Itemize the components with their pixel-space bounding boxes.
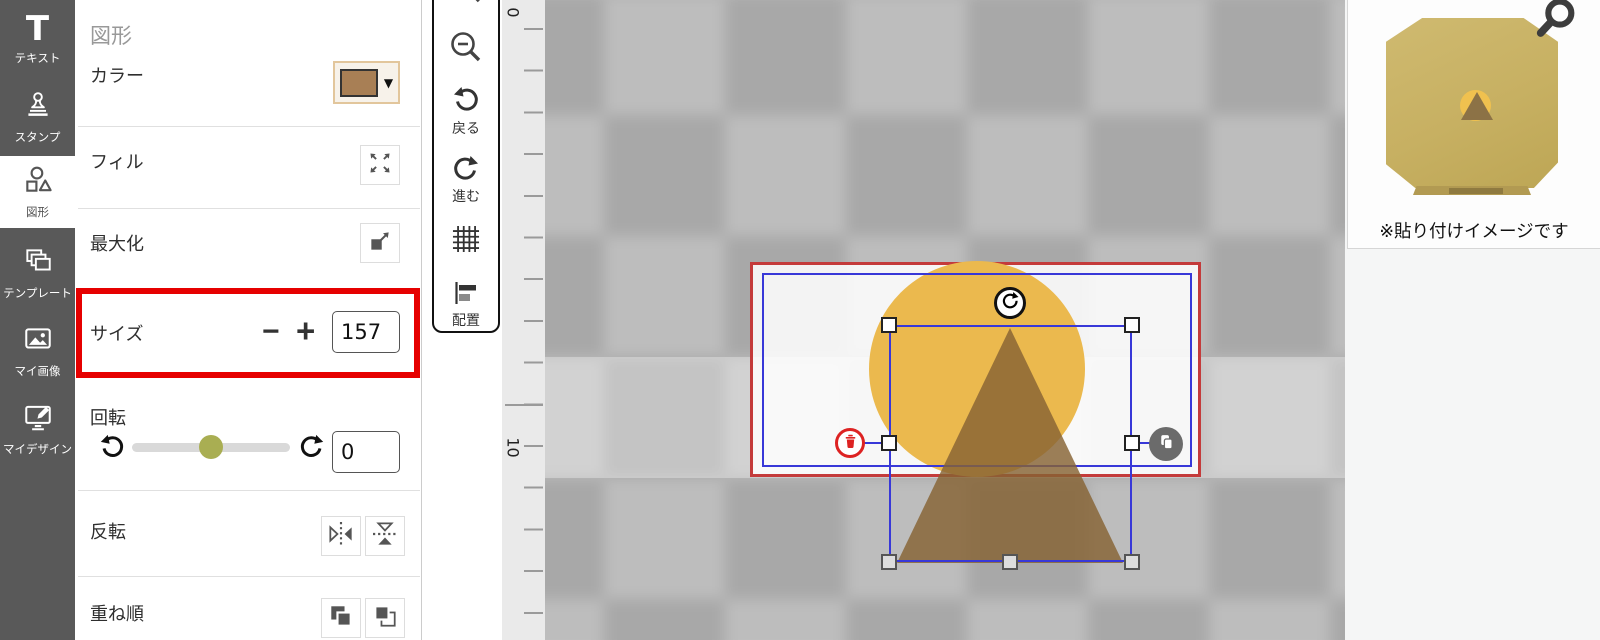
maximize-button[interactable]	[360, 223, 400, 263]
shape-properties-panel: 図形 カラー ▼ フィル 最大化 サイズ − + 回転	[75, 0, 422, 640]
sidebar-item-my-images[interactable]: マイ画像	[0, 312, 75, 390]
text-icon: T	[26, 12, 49, 46]
ruler-ticks	[524, 0, 543, 640]
rotate-handle[interactable]	[994, 287, 1026, 319]
selection-handle-mid-left[interactable]	[881, 435, 897, 451]
rotate-cw-icon	[1000, 291, 1021, 316]
rotate-cw-button[interactable]	[298, 433, 326, 465]
selection-handle-top-left[interactable]	[881, 317, 897, 333]
stamp-icon	[22, 89, 54, 125]
zoom-in-button[interactable]	[434, 0, 498, 8]
flip-horizontal-icon	[325, 518, 357, 554]
expand-arrows-icon	[367, 150, 393, 180]
divider	[78, 490, 420, 491]
sidebar-item-my-designs[interactable]: マイデザイン	[0, 390, 75, 468]
paste-preview-panel: ※貼り付けイメージです	[1347, 0, 1600, 249]
send-backward-icon	[370, 601, 400, 635]
selection-handle-bottom-left[interactable]	[881, 554, 897, 570]
color-picker-button[interactable]: ▼	[333, 61, 400, 104]
order-label: 重ね順	[90, 600, 144, 626]
preview-triangle-shape	[1461, 92, 1493, 120]
sidebar-item-label: テンプレート	[3, 285, 72, 301]
divider	[78, 126, 420, 127]
preview-object-notch	[1449, 188, 1503, 194]
selection-box[interactable]	[889, 325, 1132, 562]
sidebar-item-label: 図形	[26, 204, 49, 220]
vertical-ruler: 0 10	[502, 0, 545, 640]
copy-icon	[1156, 432, 1177, 457]
sidebar-item-label: マイデザイン	[3, 441, 72, 457]
send-backward-button[interactable]	[365, 598, 405, 638]
flip-label: 反転	[90, 518, 126, 544]
ruler-major-tick	[505, 404, 543, 406]
preview-caption: ※貼り付けイメージです	[1352, 218, 1596, 243]
canvas: 0 10 戻る 進む 配置	[422, 0, 1600, 640]
sidebar-item-label: マイ画像	[15, 363, 61, 379]
ruler-label-0: 0	[504, 7, 523, 17]
grid-toggle-button[interactable]	[434, 222, 498, 256]
image-icon	[22, 323, 54, 359]
flip-vertical-icon	[369, 518, 401, 554]
rotation-slider-knob[interactable]	[199, 435, 223, 459]
size-label: サイズ	[90, 320, 143, 346]
divider	[78, 576, 420, 577]
size-decrease-button[interactable]: −	[262, 317, 280, 347]
rotation-label: 回転	[90, 404, 126, 430]
sidebar: T テキスト スタンプ 図形 テンプレート マイ画像	[0, 0, 75, 640]
shapes-icon	[22, 164, 54, 200]
size-increase-button[interactable]: +	[296, 314, 315, 347]
rotation-slider[interactable]	[132, 443, 290, 452]
trash-icon	[842, 433, 859, 454]
delete-button[interactable]	[835, 428, 865, 458]
maximize-icon	[367, 228, 393, 258]
color-label: カラー	[90, 62, 144, 88]
undo-label: 戻る	[434, 118, 498, 138]
flip-vertical-button[interactable]	[365, 516, 405, 556]
fill-label: フィル	[90, 148, 144, 174]
divider	[78, 208, 420, 209]
sidebar-item-shape[interactable]: 図形	[0, 156, 75, 228]
rotate-ccw-button[interactable]	[98, 433, 126, 465]
app-window: T テキスト スタンプ 図形 テンプレート マイ画像	[0, 0, 1600, 640]
align-label: 配置	[434, 310, 498, 330]
size-input[interactable]	[332, 311, 400, 353]
zoom-out-button[interactable]	[434, 27, 498, 67]
layers-icon	[22, 245, 54, 281]
ruler-label-10: 10	[504, 437, 523, 457]
bring-forward-icon	[326, 601, 356, 635]
fill-button[interactable]	[360, 145, 400, 185]
sidebar-item-template[interactable]: テンプレート	[0, 234, 75, 312]
canvas-toolbar: 戻る 進む 配置	[432, 0, 500, 333]
flip-horizontal-button[interactable]	[321, 516, 361, 556]
chevron-down-icon: ▼	[384, 76, 393, 90]
sidebar-item-stamp[interactable]: スタンプ	[0, 78, 75, 156]
undo-button[interactable]	[434, 85, 498, 115]
color-swatch	[340, 69, 378, 97]
sidebar-item-label: テキスト	[15, 50, 61, 66]
panel-title: 図形	[90, 20, 132, 50]
align-button[interactable]	[434, 278, 498, 308]
rotation-input[interactable]	[332, 431, 400, 473]
design-icon	[22, 401, 54, 437]
sidebar-item-text[interactable]: T テキスト	[0, 0, 75, 78]
maximize-label: 最大化	[90, 230, 144, 256]
redo-button[interactable]	[434, 154, 498, 184]
selection-handle-mid-right[interactable]	[1124, 435, 1140, 451]
redo-label: 進む	[434, 186, 498, 206]
selection-handle-top-right[interactable]	[1124, 317, 1140, 333]
sidebar-item-label: スタンプ	[15, 129, 61, 145]
selection-handle-bottom-right[interactable]	[1124, 554, 1140, 570]
duplicate-button[interactable]	[1149, 427, 1183, 461]
selection-handle-bottom-center[interactable]	[1002, 554, 1018, 570]
bring-forward-button[interactable]	[321, 598, 361, 638]
preview-magnifier-button[interactable]	[1533, 0, 1579, 47]
